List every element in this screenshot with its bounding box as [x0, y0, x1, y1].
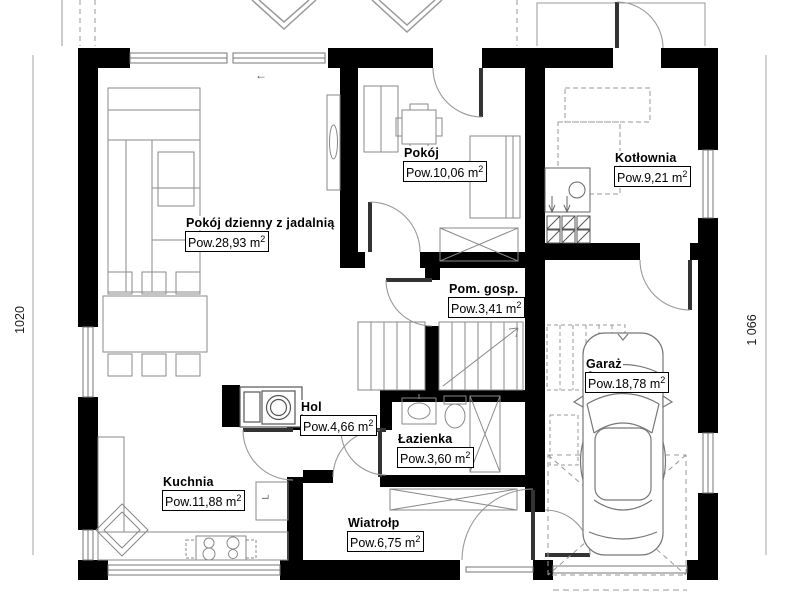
chair	[176, 272, 200, 294]
chair	[108, 354, 132, 376]
desk	[402, 110, 436, 144]
hall-appliances	[240, 387, 302, 427]
coffee-table	[158, 152, 194, 206]
room-name: Wiatrołp	[347, 516, 400, 530]
room-label-utility-room: Pom. gosp. Pow.3,41 m2	[448, 282, 525, 318]
room-area: Pow.9,21 m2	[614, 166, 691, 187]
room-area: Pow.28,93 m2	[185, 231, 269, 252]
room-name: Kuchnia	[162, 475, 215, 489]
room-label-boiler-room: Kotłownia Pow.9,21 m2	[614, 151, 691, 187]
floor-drain-grid	[547, 216, 590, 243]
room-name: Pokój	[403, 146, 440, 160]
room-name: Pokój dzienny z jadalnią	[185, 216, 336, 230]
vestibule-wardrobe	[390, 489, 517, 510]
room-name: Hol	[300, 400, 323, 414]
chair	[142, 272, 166, 294]
utility-door-leaf	[386, 278, 432, 282]
room-name: Kotłownia	[614, 151, 678, 165]
boiler-ext-door-leaf	[615, 2, 619, 48]
car-mirror-left	[574, 396, 583, 407]
corner-cabinet-mark: L	[261, 494, 271, 499]
kitchen-door-leaf	[243, 428, 293, 432]
garage-side-door-leaf	[545, 553, 590, 557]
room-label-bedroom: Pokój Pow.10,06 m2	[403, 146, 487, 182]
room-label-garage: Garaż Pow.18,78 m2	[585, 357, 669, 393]
terrace-door-leaf	[479, 68, 483, 117]
room-name: Łazienka	[397, 432, 453, 446]
entry-door-sill	[466, 567, 533, 572]
kitchen-counter-bottom	[98, 532, 288, 560]
car-mirror-right	[663, 396, 672, 407]
dimension-left: 1020	[13, 290, 27, 350]
staircase	[358, 322, 523, 390]
room-area: Pow.11,88 m2	[162, 490, 245, 511]
stair-direction-line	[443, 328, 518, 386]
room-area: Pow.3,41 m2	[448, 297, 525, 318]
chair	[108, 272, 132, 294]
room-area: Pow.3,60 m2	[397, 447, 474, 468]
dining-table	[103, 296, 207, 352]
vestibule-door-leaf	[378, 430, 382, 477]
chair	[176, 354, 200, 376]
room-name: Pom. gosp.	[448, 282, 519, 296]
room-name: Garaż	[585, 357, 623, 371]
kitchen-counter-left	[98, 437, 124, 532]
chair	[142, 354, 166, 376]
room-area: Pow.18,78 m2	[585, 372, 669, 393]
room-area: Pow.10,06 m2	[403, 161, 487, 182]
boiler-garage-door-leaf	[688, 260, 692, 310]
dimension-right: 1 066	[745, 300, 759, 360]
bedroom-door-leaf	[368, 202, 372, 252]
sofa	[108, 88, 200, 292]
room-area: Pow.4,66 m2	[300, 415, 377, 436]
room-area: Pow.6,75 m2	[347, 531, 424, 552]
room-label-bathroom: Łazienka Pow.3,60 m2	[397, 432, 474, 468]
corner-cabinet	[256, 482, 288, 520]
floor-plan-drawing	[0, 0, 800, 600]
toilet	[445, 404, 465, 428]
room-label-hall: Hol Pow.4,66 m2	[300, 400, 377, 436]
fireplace	[327, 95, 340, 190]
terrace-decor	[252, 0, 442, 32]
floor-plan-canvas: Pokój dzienny z jadalnią Pow.28,93 m2 Po…	[0, 0, 800, 600]
entry-door-leaf	[531, 490, 535, 560]
garage-door	[553, 566, 687, 573]
room-label-vestibule: Wiatrołp Pow.6,75 m2	[347, 516, 424, 552]
sliding-door-arrow-icon: ←	[255, 68, 267, 82]
room-label-kitchen: Kuchnia Pow.11,88 m2	[162, 475, 245, 511]
room-label-living-room: Pokój dzienny z jadalnią Pow.28,93 m2	[185, 216, 336, 252]
